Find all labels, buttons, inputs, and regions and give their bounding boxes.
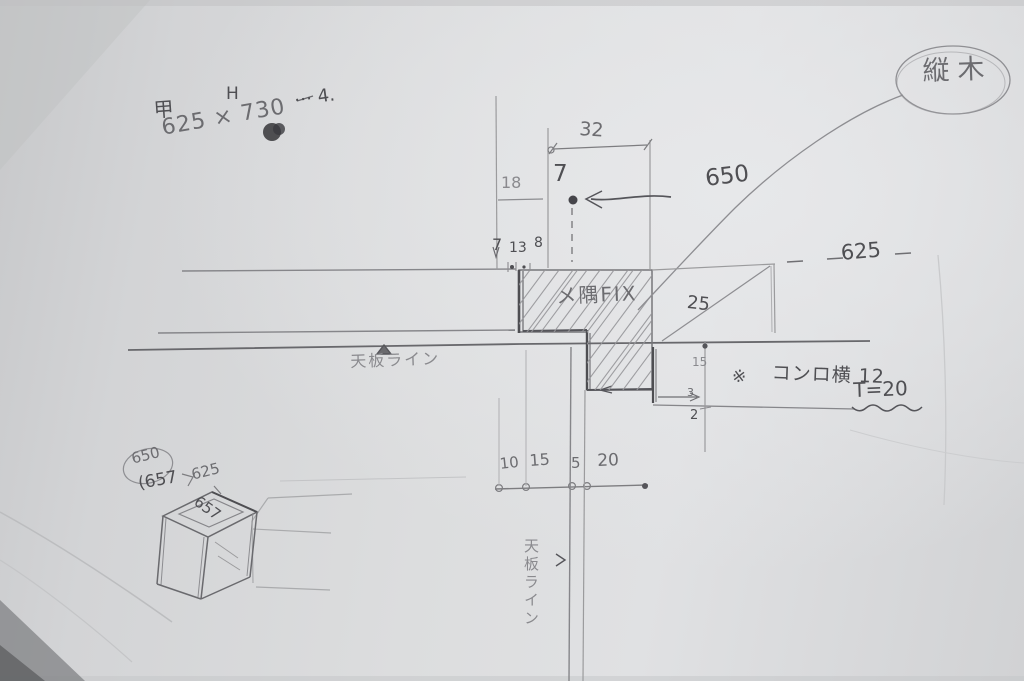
thickness-note: T=20: [853, 378, 908, 400]
bottom-dim-20-label: 20: [597, 452, 619, 470]
lower-verticals: [556, 347, 585, 681]
bottom-dim-5-label: 5: [571, 456, 581, 471]
reference-mark: ※: [731, 368, 747, 387]
unit-3d-sketch: [120, 443, 257, 599]
countertop-line-vertical-label: 天板ライン: [523, 538, 538, 648]
dim-650-label: 650: [704, 163, 750, 191]
level-625-label: 625: [840, 240, 882, 264]
counter-band-lines: [158, 269, 516, 333]
spacing-13-label: 13: [509, 241, 527, 255]
dim-18-label: 18: [501, 175, 521, 191]
pencil-sketch-photo: 甲 H 625 × 730 ⋯ 4. 縦木 32 18 7 650 7 13 8…: [0, 0, 1024, 681]
dim-32-label: 32: [579, 120, 604, 141]
bottom-dim-10-label: 10: [499, 455, 520, 472]
hatch-fix-label: メ隅FIX: [556, 283, 638, 306]
step-15-label: 15: [692, 356, 707, 368]
faint-profile-sketch: [252, 494, 352, 590]
height-symbol-label: H: [226, 86, 239, 103]
stamp-label: 縦木: [922, 56, 993, 85]
spacing-8-label: 8: [534, 236, 543, 250]
countertop-line-label: 天板ライン: [350, 351, 441, 370]
step-3-label: 3: [687, 387, 694, 398]
step-detail-lines: [653, 341, 855, 452]
arrow-650: [569, 191, 672, 208]
step-2-label: 2: [690, 409, 698, 422]
countertop-line: [128, 341, 870, 354]
wavy-underline: [852, 405, 922, 411]
dim-7-label: 7: [553, 163, 568, 186]
dim-25-label: 25: [686, 294, 711, 314]
spacing-7-label: 7: [492, 237, 502, 253]
bottom-dim-15-label: 15: [529, 452, 550, 469]
